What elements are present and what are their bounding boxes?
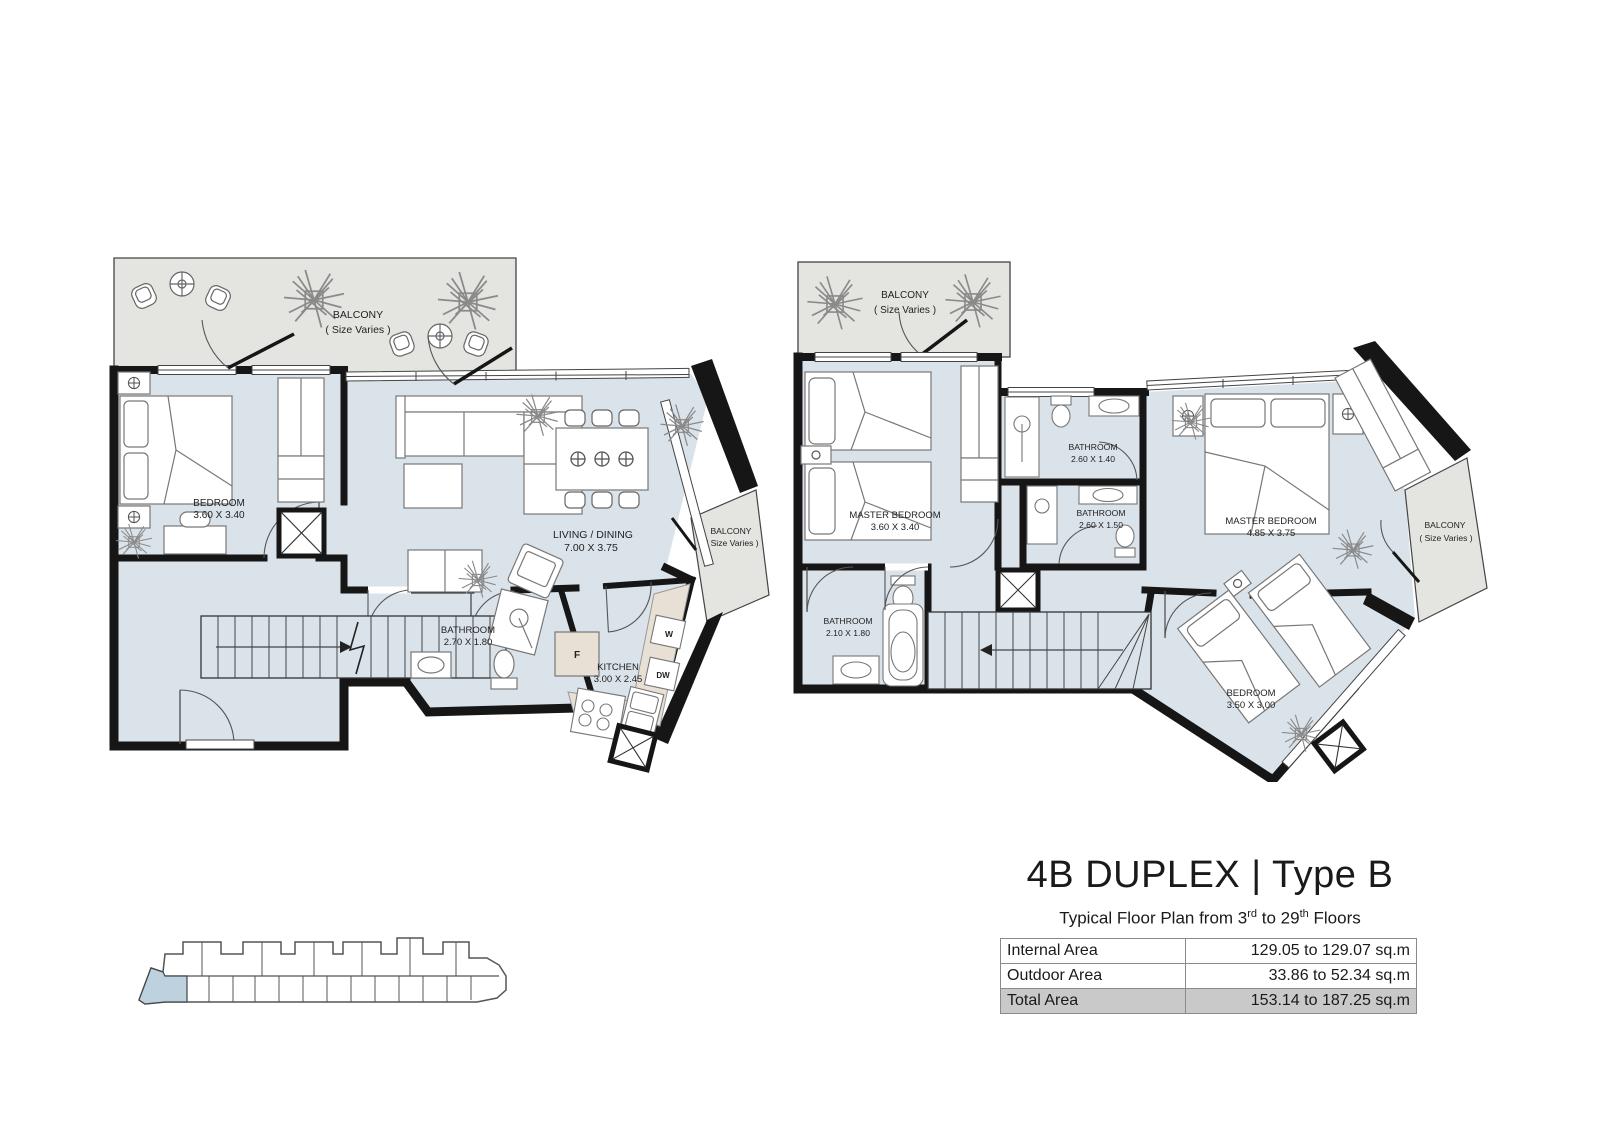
page-subtitle: Typical Floor Plan from 3rd to 29th Floo… — [1000, 908, 1420, 929]
kitchen-label: KITCHEN — [597, 662, 639, 673]
page-title: 4B DUPLEX | Type B — [1000, 854, 1420, 897]
balcony-size-label: ( Size Varies ) — [1419, 533, 1472, 543]
table-row: Outdoor Area 33.86 to 52.34 sq.m — [1001, 963, 1417, 988]
table-row: Total Area 153.14 to 187.25 sq.m — [1001, 988, 1417, 1013]
balcony-label: BALCONY — [1424, 520, 1465, 530]
bathroom-dims: 2.70 X 1.80 — [444, 637, 493, 648]
bathroom-3-dims: 2.10 X 1.80 — [826, 628, 870, 638]
elevator-icon — [998, 570, 1038, 610]
master-bedroom-large-label: MASTER BEDROOM — [1225, 516, 1316, 527]
bathroom-3-label: BATHROOM — [823, 616, 872, 626]
washer-label: W — [665, 629, 674, 639]
subtitle-text: Floors — [1309, 909, 1361, 928]
subtitle-text: Typical Floor Plan from 3 — [1059, 909, 1247, 928]
bathroom-1-dims: 2.60 X 1.40 — [1071, 454, 1115, 464]
area-value-cell: 129.05 to 129.07 sq.m — [1186, 938, 1417, 963]
balcony-label: BALCONY — [881, 290, 929, 301]
bedroom-label: BEDROOM — [1226, 688, 1275, 699]
floor-plan-sheet: BALCONY ( Size Varies ) BALCONY ( Size V… — [0, 0, 1600, 1132]
bathroom-label: BATHROOM — [441, 625, 495, 636]
building-outline — [139, 938, 506, 1004]
elevator-icon — [610, 726, 656, 770]
master-bedroom-small-label: MASTER BEDROOM — [849, 510, 940, 521]
upper-balcony-side: BALCONY ( Size Varies ) — [1405, 458, 1487, 622]
subtitle-text: to 29 — [1257, 909, 1300, 928]
bedroom-dims: 3.50 X 3.00 — [1227, 700, 1276, 711]
round-table-icon — [428, 324, 452, 348]
area-label-cell: Total Area — [1001, 988, 1186, 1013]
key-plan — [125, 912, 525, 1017]
round-table-icon — [170, 272, 194, 296]
master-bedroom-small-dims: 3.60 X 3.40 — [871, 522, 920, 533]
subtitle-sup: th — [1300, 908, 1309, 920]
balcony-size-label: ( Size Varies ) — [874, 305, 936, 316]
stairs — [928, 612, 1151, 689]
bathroom-2-dims: 2.60 X 1.50 — [1079, 520, 1123, 530]
living-dining-dims: 7.00 X 3.75 — [564, 542, 618, 554]
bedroom-dims: 3.60 X 3.40 — [193, 510, 245, 521]
title-block: 4B DUPLEX | Type B Typical Floor Plan fr… — [1000, 854, 1420, 1014]
bedroom-label: BEDROOM — [193, 498, 245, 509]
upper-balcony-top: BALCONY ( Size Varies ) — [798, 262, 1010, 357]
balcony-label: BALCONY — [710, 526, 751, 536]
subtitle-sup: rd — [1247, 908, 1257, 920]
balcony-size-label: ( Size Varies ) — [705, 538, 758, 548]
area-value-cell: 33.86 to 52.34 sq.m — [1186, 963, 1417, 988]
area-value-cell: 153.14 to 187.25 sq.m — [1186, 988, 1417, 1013]
balcony-size-label: ( Size Varies ) — [325, 324, 390, 336]
bathroom-1-label: BATHROOM — [1068, 442, 1117, 452]
area-label-cell: Internal Area — [1001, 938, 1186, 963]
elevator-icon — [279, 510, 324, 556]
area-table: Internal Area 129.05 to 129.07 sq.m Outd… — [1000, 938, 1417, 1014]
area-label-cell: Outdoor Area — [1001, 963, 1186, 988]
balcony-label: BALCONY — [333, 309, 383, 321]
fridge-label: F — [574, 650, 580, 661]
dishwasher-label: DW — [656, 671, 670, 680]
living-dining-label: LIVING / DINING — [553, 529, 633, 541]
table-row: Internal Area 129.05 to 129.07 sq.m — [1001, 938, 1417, 963]
lower-floor-plan: BALCONY ( Size Varies ) BALCONY ( Size V… — [106, 250, 796, 775]
kitchen-dims: 3.00 X 2.45 — [594, 674, 643, 685]
bathroom-2-label: BATHROOM — [1076, 508, 1125, 518]
upper-floor-plan: BALCONY ( Size Varies ) BALCONY ( Size V… — [793, 252, 1493, 782]
master-bedroom-large-dims: 4.85 X 3.75 — [1247, 528, 1296, 539]
